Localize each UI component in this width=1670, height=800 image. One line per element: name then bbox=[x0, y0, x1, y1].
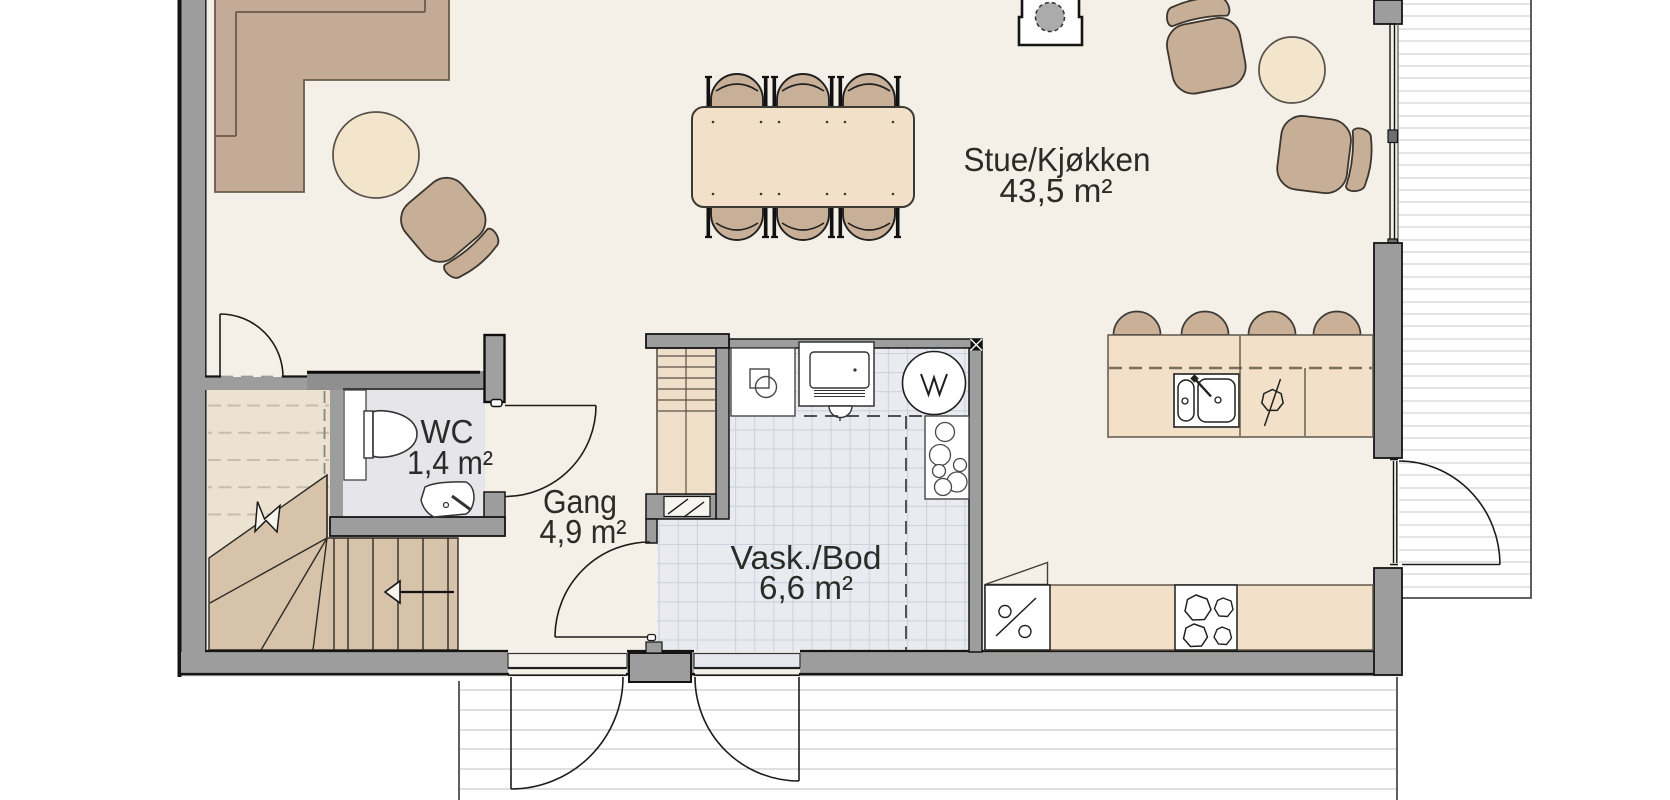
svg-text:43,5 m²: 43,5 m² bbox=[1000, 172, 1113, 209]
svg-text:1,4 m²: 1,4 m² bbox=[407, 444, 493, 481]
svg-text:6,6 m²: 6,6 m² bbox=[759, 569, 853, 606]
svg-text:4,9 m²: 4,9 m² bbox=[540, 513, 627, 550]
